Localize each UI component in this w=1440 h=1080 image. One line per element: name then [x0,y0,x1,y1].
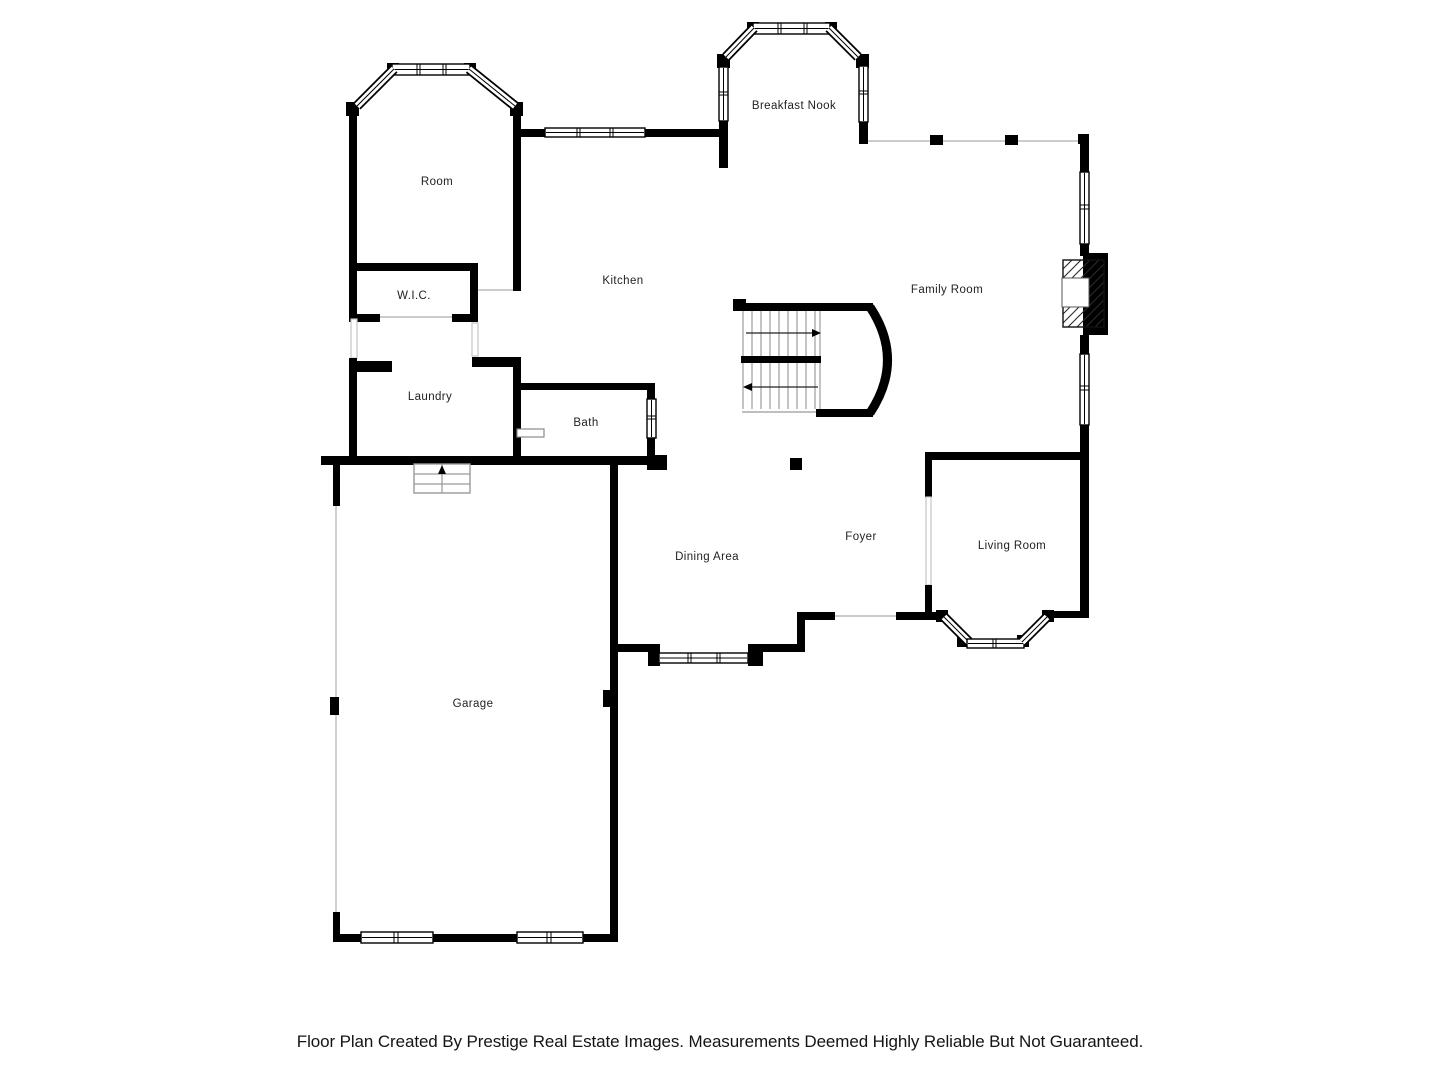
wall-post [790,458,802,470]
label-kitchen: Kitchen [602,275,643,287]
wic-walls [349,263,513,358]
garage-door-window [361,932,433,943]
wall-segment [719,120,728,168]
wall-segment [610,460,618,942]
wall-segment [452,314,478,322]
disclaimer-text: Floor Plan Created By Prestige Real Esta… [0,1032,1440,1052]
label-room: Room [421,176,453,188]
wall-segment [1080,335,1089,356]
floor-plan-page: Breakfast Nook Room Kitchen Family Room … [0,0,1440,1080]
wall-segment [859,121,868,144]
wall-segment [816,409,873,417]
wall-post [733,299,746,311]
wall-segment [1080,452,1089,618]
label-bath: Bath [573,417,598,429]
wall-segment [925,452,932,497]
wall-segment [349,263,478,271]
wall-segment [746,303,873,311]
stair-landing-edge [741,356,821,363]
wall-segment [582,934,618,942]
label-foyer: Foyer [845,531,876,543]
stair-risers-lower [743,363,820,409]
window [719,67,728,121]
window [545,128,645,137]
stair-direction-arrow-down [743,383,818,391]
wall-corner [748,644,763,666]
window-angled [1022,617,1047,642]
wall-segment [647,383,655,400]
wall-segment [349,265,357,318]
window-angled [357,69,394,106]
wall-segment [925,452,1089,460]
window [659,653,748,663]
wall-post [1005,135,1018,145]
wall-segment [470,263,478,322]
staircase [733,299,888,417]
door-opening [351,319,357,358]
dining-walls [615,612,805,666]
label-family-room: Family Room [911,284,983,296]
window [967,639,1024,648]
label-garage: Garage [453,698,494,710]
label-breakfast-nook: Breakfast Nook [752,100,836,112]
wall-segment [349,108,357,265]
fireplace-firebox [1062,278,1089,307]
cased-opening [926,497,931,585]
window [1080,172,1089,244]
window-angled [829,28,858,57]
wall-post [930,135,943,145]
window [859,66,868,122]
wall-segment [333,934,362,942]
window-angled [726,28,754,57]
door-opening [472,323,478,356]
window [753,23,830,34]
wall-segment [647,437,655,457]
wall-segment [472,357,515,367]
label-living-room: Living Room [978,540,1046,552]
wall-segment [797,612,835,620]
wall-segment [513,357,521,463]
curved-stair-wall [870,307,888,413]
wall-segment [645,129,723,137]
room-bay-windows [357,64,515,106]
kitchen-walls [516,128,723,137]
floor-plan-drawing: Breakfast Nook Room Kitchen Family Room … [0,0,1440,1080]
wall-segment [615,644,653,652]
fireplace [1062,253,1108,335]
stair-direction-arrow-up [746,329,821,337]
wall-segment [1051,611,1088,618]
garage-door-window [517,932,583,943]
wall-segment [353,361,392,372]
window [1080,354,1089,425]
wall-corner [648,644,660,666]
wall-segment [516,129,545,137]
wall-post [603,690,611,707]
family-room-walls [868,134,1089,458]
wall-segment [349,358,357,458]
wall-segment [925,585,932,618]
label-laundry: Laundry [408,391,452,403]
window-angled [469,69,515,106]
laundry-walls [349,357,521,463]
garage-walls [321,456,667,943]
wall-segment [1080,134,1089,173]
wall-segment [516,383,655,390]
label-dining-area: Dining Area [675,551,739,563]
wall-segment [432,934,518,942]
window-angled [944,617,969,642]
window [647,399,656,438]
window [392,64,470,75]
sink-fixture [517,429,544,437]
wall-post [330,697,339,715]
garage-entry-steps [414,464,470,493]
wall-segment [333,456,340,506]
label-wic: W.I.C. [397,290,431,302]
